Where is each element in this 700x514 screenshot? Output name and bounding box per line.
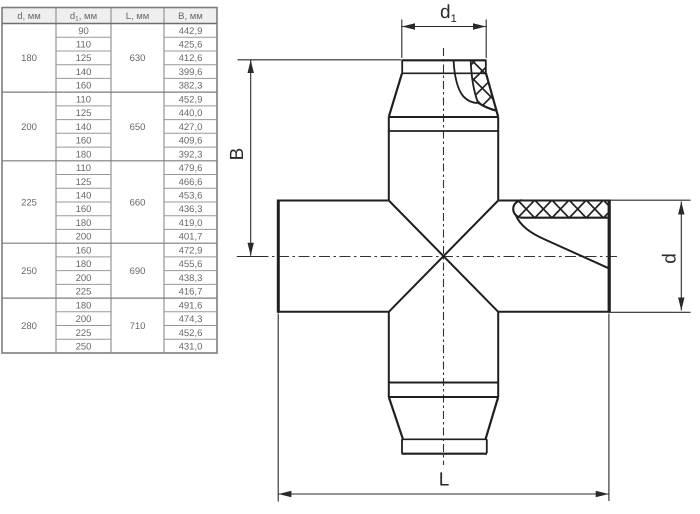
svg-text:491,6: 491,6	[179, 300, 203, 311]
svg-text:90: 90	[78, 26, 89, 37]
svg-text:140: 140	[76, 67, 92, 78]
svg-text:382,3: 382,3	[179, 81, 203, 92]
svg-text:452,6: 452,6	[179, 328, 203, 339]
svg-text:225: 225	[76, 287, 92, 298]
svg-text:250: 250	[21, 266, 37, 277]
svg-text:438,3: 438,3	[179, 273, 203, 284]
svg-text:392,3: 392,3	[179, 149, 203, 160]
svg-text:160: 160	[76, 81, 92, 92]
svg-text:125: 125	[76, 108, 92, 119]
svg-text:125: 125	[76, 53, 92, 64]
svg-text:442,9: 442,9	[179, 26, 203, 37]
svg-text:660: 660	[130, 197, 146, 208]
svg-text:436,3: 436,3	[179, 204, 203, 215]
svg-text:200: 200	[21, 122, 37, 133]
svg-text:125: 125	[76, 177, 92, 188]
svg-text:419,0: 419,0	[179, 218, 203, 229]
svg-text:B: B	[227, 148, 248, 161]
svg-text:140: 140	[76, 122, 92, 133]
svg-text:452,9: 452,9	[179, 94, 203, 105]
svg-text:110: 110	[76, 163, 91, 174]
svg-text:L: L	[439, 470, 450, 491]
svg-text:472,9: 472,9	[179, 245, 203, 256]
svg-text:650: 650	[130, 122, 146, 133]
svg-text:L, мм: L, мм	[126, 11, 150, 22]
svg-text:416,7: 416,7	[179, 287, 203, 298]
svg-text:401,7: 401,7	[179, 232, 203, 243]
svg-text:225: 225	[21, 197, 37, 208]
svg-text:B, мм: B, мм	[178, 11, 203, 22]
svg-text:409,6: 409,6	[179, 136, 203, 147]
svg-text:180: 180	[76, 149, 92, 160]
svg-text:412,6: 412,6	[179, 53, 203, 64]
svg-text:180: 180	[76, 300, 92, 311]
svg-text:474,3: 474,3	[179, 314, 203, 325]
svg-text:425,6: 425,6	[179, 40, 203, 51]
svg-text:630: 630	[130, 53, 146, 64]
svg-text:200: 200	[76, 273, 92, 284]
svg-text:d, мм: d, мм	[17, 11, 41, 22]
svg-text:160: 160	[76, 136, 92, 147]
svg-text:455,6: 455,6	[179, 259, 203, 270]
svg-text:180: 180	[76, 218, 92, 229]
svg-text:399,6: 399,6	[179, 67, 203, 78]
svg-text:160: 160	[76, 245, 92, 256]
svg-text:479,6: 479,6	[179, 163, 203, 174]
svg-text:d1: d1	[440, 2, 457, 25]
svg-text:280: 280	[21, 321, 37, 332]
svg-text:180: 180	[21, 53, 37, 64]
svg-text:200: 200	[76, 232, 92, 243]
svg-text:d: d	[660, 253, 681, 264]
svg-text:250: 250	[76, 342, 92, 353]
svg-text:690: 690	[130, 266, 146, 277]
svg-text:431,0: 431,0	[179, 342, 203, 353]
svg-text:466,6: 466,6	[179, 177, 203, 188]
svg-text:110: 110	[76, 94, 91, 105]
svg-text:160: 160	[76, 204, 92, 215]
svg-text:180: 180	[76, 259, 92, 270]
svg-text:110: 110	[76, 40, 91, 51]
svg-text:200: 200	[76, 314, 92, 325]
svg-text:d1, мм: d1, мм	[70, 11, 97, 23]
svg-text:427,0: 427,0	[179, 122, 203, 133]
svg-text:140: 140	[76, 191, 92, 202]
svg-text:710: 710	[130, 321, 146, 332]
svg-text:225: 225	[76, 328, 92, 339]
svg-text:453,6: 453,6	[179, 191, 203, 202]
svg-text:440,0: 440,0	[179, 108, 203, 119]
